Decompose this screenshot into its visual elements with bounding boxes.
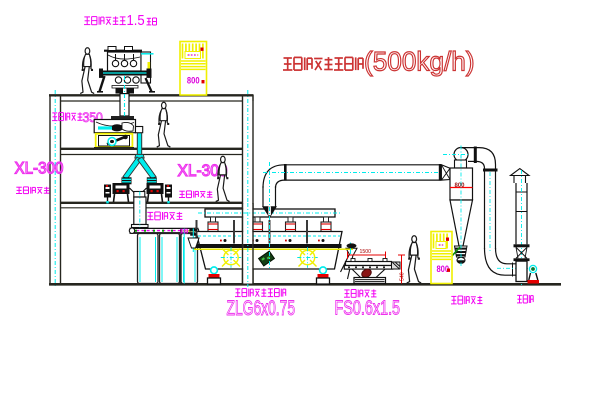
svg-text:540: 540 (400, 272, 406, 281)
svg-text:XL-300: XL-300 (15, 160, 64, 178)
svg-text:1500: 1500 (360, 249, 372, 255)
svg-text:(500kg/h): (500kg/h) (364, 46, 475, 76)
svg-text:800: 800 (455, 183, 466, 189)
svg-text:FS0.6x1.5: FS0.6x1.5 (335, 296, 401, 319)
svg-text:ZLG6x0.75: ZLG6x0.75 (227, 296, 296, 320)
svg-text:800: 800 (187, 75, 200, 86)
svg-text:1.5: 1.5 (127, 12, 145, 28)
